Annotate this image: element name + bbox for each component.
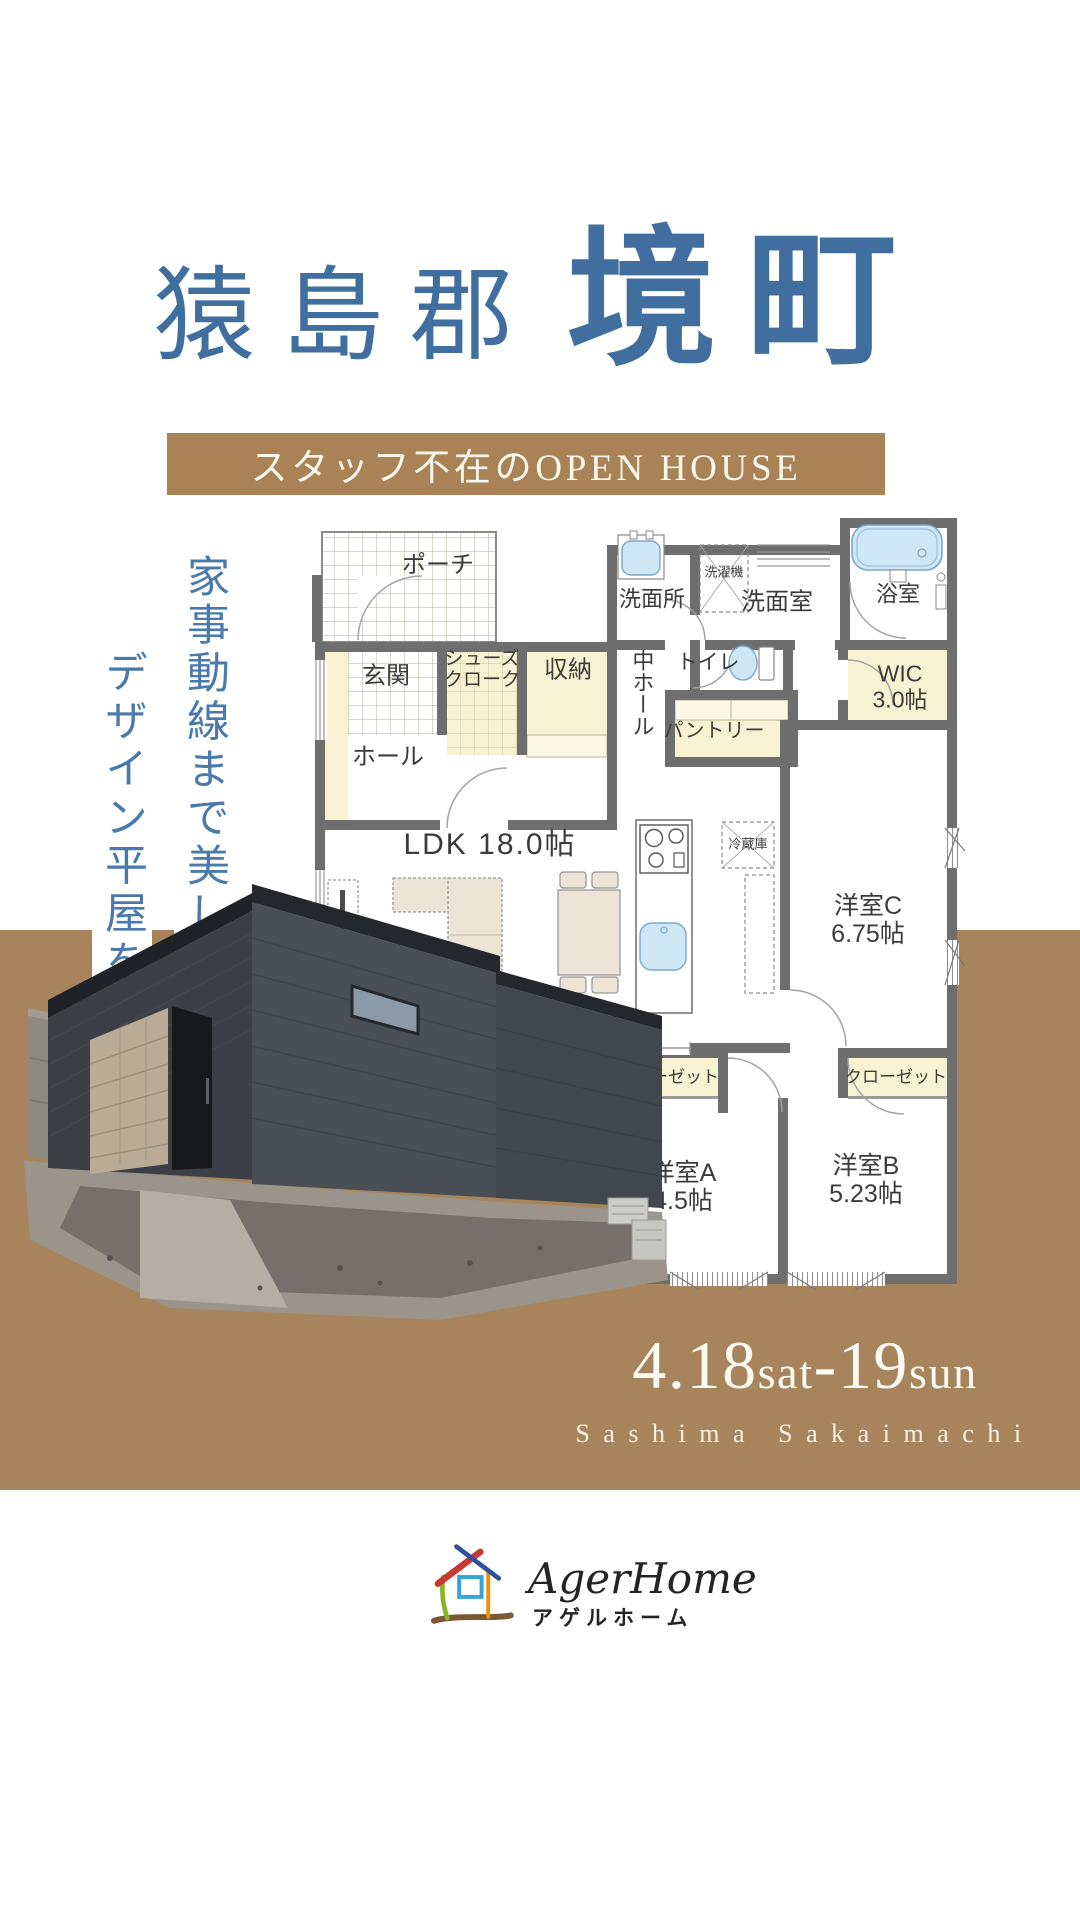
room-label-closet-b: クローゼット [845,1067,947,1086]
room-label-washroom: 洗面所 [619,588,685,613]
room-label-washer: 洗濯機 [704,566,743,581]
day-end: sun [909,1347,978,1398]
room-label-porch: ポーチ [402,553,474,580]
event-info: 4.18sat-19sun Sashima Sakaimachi [565,1326,1045,1449]
room-label-toilet: トイレ [677,651,740,675]
room-label-wic: WIC 3.0帖 [873,661,928,713]
open-house-flyer: 猿島郡 境町 スタッフ不在のOPEN HOUSE 家事動線まで美しい、 デザイン… [0,0,1080,1920]
date-dash: - [814,1327,838,1403]
company-logo: AgerHome アゲルホーム [430,1542,690,1637]
room-label-entrance: 玄関 [362,664,410,691]
room-label-room-b: 洋室B 5.23帖 [829,1152,903,1208]
house-doodle-icon [430,1542,516,1624]
location-romaji: Sashima Sakaimachi [565,1419,1045,1449]
room-label-storage: 収納 [544,658,592,685]
room-label-fridge: 冷蔵庫 [728,838,767,853]
room-label-middle-hall: 中ホール [629,649,654,737]
room-label-shoe-closet: シューズ クローク [444,649,520,692]
room-label-hall: ホール [352,745,424,772]
room-label-powder-room: 洗面室 [741,590,813,617]
day-start: sat [758,1347,814,1398]
title-district: 猿島郡 [153,234,539,381]
title-town: 境町 [567,178,927,395]
house-photo [20,868,670,1333]
logo-name-latin: AgerHome [528,1554,757,1603]
date-start: 4.18 [632,1327,757,1403]
date-end: 19 [838,1327,909,1403]
room-label-room-c: 洋室C 6.75帖 [831,892,905,948]
logo-name-kana: アゲルホーム [532,1602,693,1632]
room-label-ldk: LDK 18.0帖 [403,828,576,862]
event-date: 4.18sat-19sun [565,1326,1045,1405]
room-label-pantry: パントリー [664,720,765,742]
page-title: 猿島郡 境町 [0,178,1080,395]
room-label-bathroom: 浴室 [876,583,920,608]
